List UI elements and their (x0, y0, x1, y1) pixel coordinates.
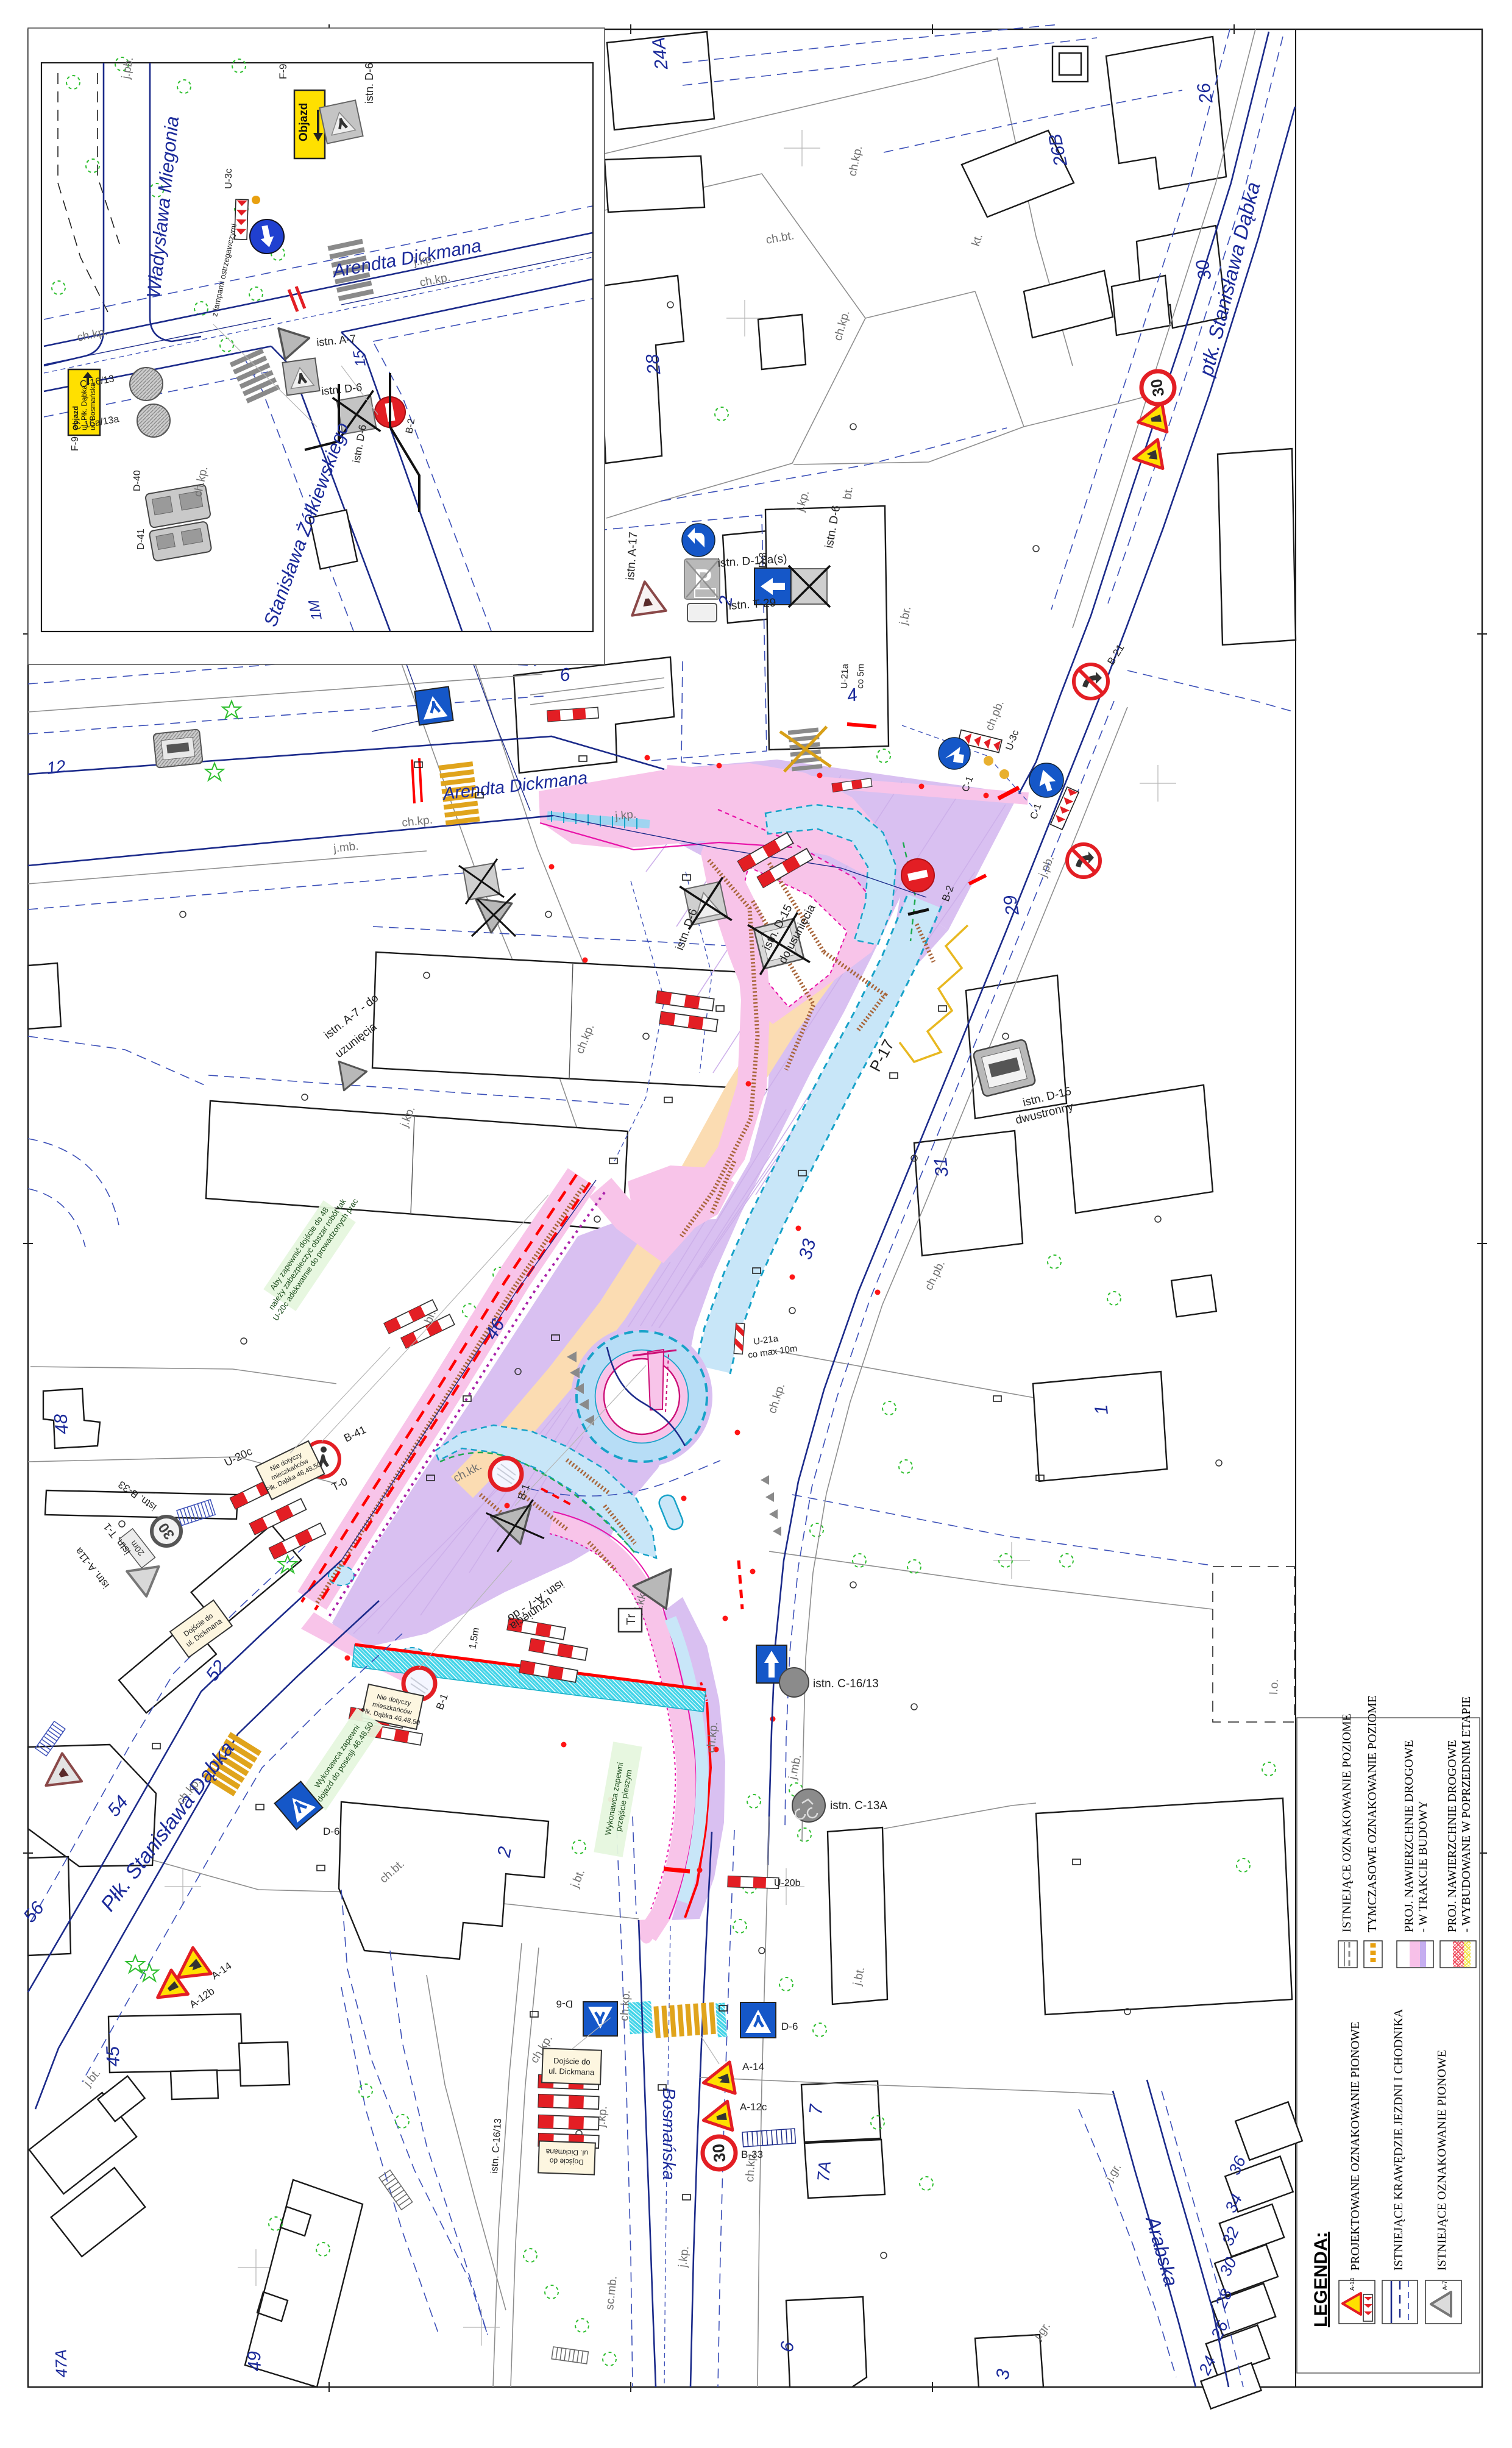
svg-text:A-14: A-14 (1349, 2277, 1356, 2291)
svg-text:47A: 47A (51, 2349, 71, 2378)
svg-text:PROJEKTOWANE OZNAKOWANIE PIONO: PROJEKTOWANE OZNAKOWANIE PIONOWE (1349, 2022, 1362, 2271)
svg-text:30: 30 (709, 2143, 729, 2163)
svg-text:istn. C-16/13: istn. C-16/13 (813, 1678, 879, 1690)
svg-text:U-3c: U-3c (224, 168, 234, 189)
svg-text:j.kp.: j.kp. (614, 808, 637, 823)
svg-text:26: 26 (1193, 81, 1217, 105)
svg-text:istn. C-13A: istn. C-13A (830, 1799, 887, 1812)
svg-text:ISTNIEJĄCE KRAWĘDZIE JEZDNI I: ISTNIEJĄCE KRAWĘDZIE JEZDNI I CHODNIKA (1392, 2009, 1405, 2271)
svg-text:31: 31 (931, 1156, 953, 1178)
svg-text:D-6: D-6 (323, 1826, 339, 1837)
svg-text:A-12c: A-12c (740, 2101, 767, 2113)
svg-text:15: 15 (350, 349, 369, 368)
svg-text:B-33: B-33 (741, 2149, 763, 2160)
svg-text:48: 48 (51, 1413, 73, 1435)
svg-text:ch.kp.: ch.kp. (618, 1990, 633, 2021)
svg-text:PROJ. NAWIERZCHNIE DROGOWE: PROJ. NAWIERZCHNIE DROGOWE (1402, 1740, 1416, 1932)
svg-text:D-6: D-6 (556, 1998, 573, 2010)
svg-text:U-21a: U-21a (839, 663, 850, 689)
svg-text:A-7: A-7 (1442, 2280, 1449, 2290)
svg-text:Bosmańska: Bosmańska (659, 2088, 678, 2180)
svg-text:j.kp.: j.kp. (676, 2246, 692, 2269)
svg-text:istn. D-6: istn. D-6 (363, 63, 375, 104)
svg-text:49: 49 (244, 2350, 265, 2372)
svg-text:- WYBUDOWANE W POPRZEDNIM ETAP: - WYBUDOWANE W POPRZEDNIM ETAPIE (1460, 1696, 1473, 1932)
svg-text:30: 30 (1147, 377, 1168, 398)
svg-text:LEGENDA:: LEGENDA: (1311, 2232, 1331, 2327)
svg-text:D-40: D-40 (132, 470, 143, 491)
svg-text:- W TRAKCIE BUDOWY: - W TRAKCIE BUDOWY (1416, 1801, 1430, 1932)
svg-text:TYMCZASOWE OZNAKOWANIE POZIOME: TYMCZASOWE OZNAKOWANIE POZIOME (1366, 1695, 1379, 1932)
svg-text:29: 29 (1000, 894, 1024, 918)
svg-text:Objazd: Objazd (297, 103, 310, 141)
svg-text:Dojście do: Dojście do (549, 2157, 584, 2166)
svg-text:ISTNIEJĄCE OZNAKOWANIE POZIOME: ISTNIEJĄCE OZNAKOWANIE POZIOME (1340, 1713, 1354, 1932)
svg-text:PROJ. NAWIERZCHNIE DROGOWE: PROJ. NAWIERZCHNIE DROGOWE (1446, 1740, 1459, 1932)
svg-text:Dojście do: Dojście do (553, 2056, 591, 2066)
svg-text:Tr: Tr (625, 1614, 638, 1625)
svg-text:7A: 7A (814, 2160, 834, 2183)
svg-text:co 5m: co 5m (855, 664, 866, 689)
svg-text:12: 12 (46, 756, 68, 778)
svg-text:1: 1 (1091, 1404, 1112, 1416)
svg-text:l.o.: l.o. (1268, 1679, 1281, 1695)
svg-text:F-9: F-9 (277, 64, 289, 80)
svg-text:24A: 24A (648, 36, 672, 71)
svg-text:U-20b: U-20b (774, 1878, 801, 1888)
svg-text:30: 30 (1192, 258, 1215, 282)
svg-text:A-14: A-14 (742, 2061, 764, 2073)
svg-text:F-9: F-9 (70, 436, 80, 451)
svg-text:bt.: bt. (841, 486, 856, 500)
svg-text:ul. Dickmana: ul. Dickmana (548, 2066, 595, 2077)
svg-text:28: 28 (642, 353, 664, 376)
svg-text:D-41: D-41 (136, 528, 146, 550)
svg-text:1M: 1M (306, 599, 325, 622)
svg-text:45: 45 (103, 2046, 124, 2067)
svg-text:ul. Dickmana: ul. Dickmana (545, 2147, 588, 2157)
svg-text:D-6: D-6 (781, 2021, 798, 2032)
svg-text:ISTNIEJĄCE OZNAKOWANIE PIONOWE: ISTNIEJĄCE OZNAKOWANIE PIONOWE (1435, 2050, 1449, 2271)
svg-text:j.mb.: j.mb. (332, 840, 359, 855)
